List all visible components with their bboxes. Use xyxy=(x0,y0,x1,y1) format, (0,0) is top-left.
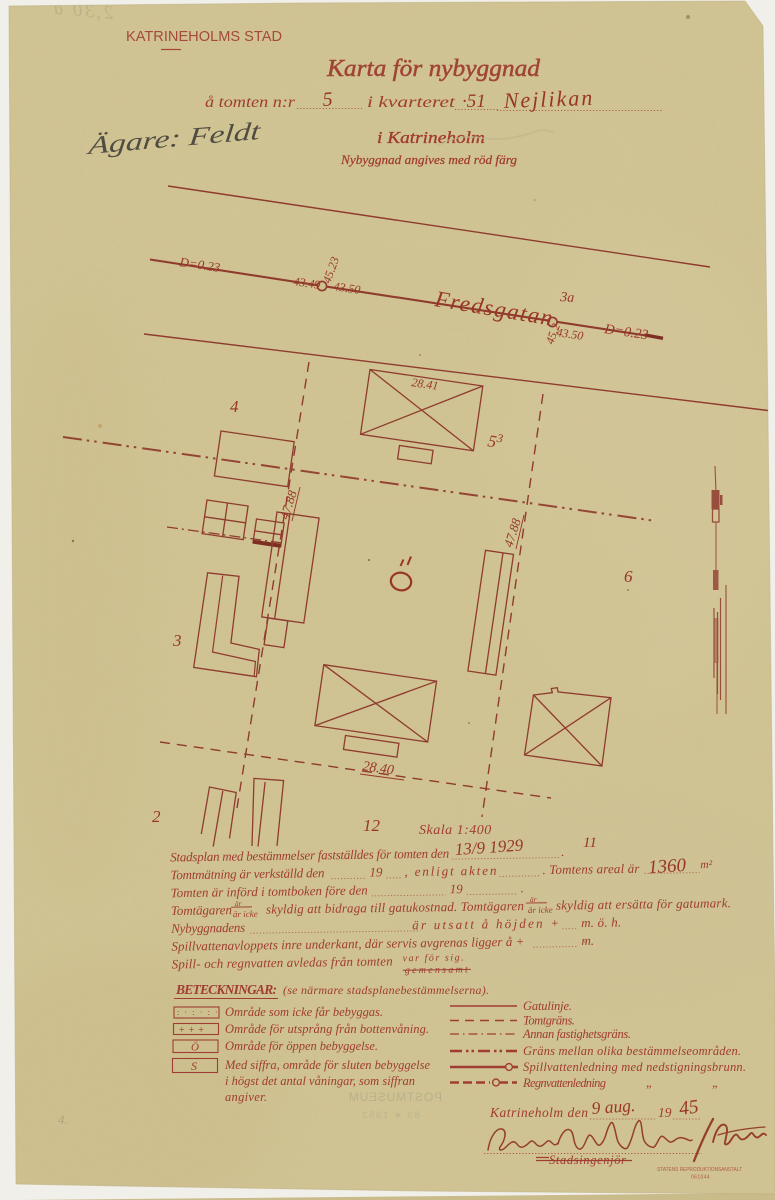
svg-text:„: „ xyxy=(712,1076,719,1090)
svg-text:11: 11 xyxy=(583,835,597,851)
svg-text:Tomten är införd i tomtboken f: Tomten är införd i tomtboken före den xyxy=(171,882,368,900)
svg-text:å tomten n:r: å tomten n:r xyxy=(205,94,296,111)
svg-text:i kvarteret: i kvarteret xyxy=(367,94,456,111)
svg-text:var för sig.: var för sig. xyxy=(403,952,464,964)
svg-text:·51: ·51 xyxy=(462,91,486,112)
svg-text:är: är xyxy=(530,895,537,904)
svg-text:83 ∗ 1952: 83 ∗ 1952 xyxy=(361,1110,420,1121)
svg-text:BETECKNINGAR:: BETECKNINGAR: xyxy=(175,982,277,997)
svg-text:3a: 3a xyxy=(559,290,575,306)
svg-text:Område för öppen bebyggelse.: Område för öppen bebyggelse. xyxy=(225,1039,378,1053)
svg-text:Annan fastighetsgräns.: Annan fastighetsgräns. xyxy=(522,1027,631,1041)
svg-text:061044: 061044 xyxy=(691,1175,710,1181)
svg-text:.: . xyxy=(521,880,524,895)
svg-text:. Tomtens areal är: . Tomtens areal är xyxy=(542,861,640,877)
svg-text:skyldig att ersätta för gatuma: skyldig att ersätta för gatumark. xyxy=(556,895,731,912)
svg-text:Ö: Ö xyxy=(191,1042,199,1054)
svg-text:är utsatt å höjden +: är utsatt å höjden + xyxy=(412,915,559,932)
svg-text:, enligt akten: , enligt akten xyxy=(404,863,496,879)
svg-text:2: 2 xyxy=(152,807,161,826)
svg-text:Tomtägaren: Tomtägaren xyxy=(171,902,232,918)
svg-text:STATENS REPRODUKTIONSANSTALT: STATENS REPRODUKTIONSANSTALT xyxy=(657,1167,742,1173)
svg-text:Nybyggnad angives med röd färg: Nybyggnad angives med röd färg xyxy=(340,153,517,167)
svg-text:m.: m. xyxy=(581,933,594,948)
svg-text:Gatulinje.: Gatulinje. xyxy=(523,999,572,1013)
svg-text:4.: 4. xyxy=(58,1112,68,1127)
svg-text:(se närmare stadsplanebestämme: (se närmare stadsplanebestämmelserna). xyxy=(283,983,489,997)
svg-text:.: . xyxy=(561,844,564,859)
svg-text:5: 5 xyxy=(322,88,334,111)
svg-text:Nejlikan: Nejlikan xyxy=(502,85,594,113)
svg-text:m. ö. h.: m. ö. h. xyxy=(581,915,621,931)
svg-text:Med siffra, område för sluten: Med siffra, område för sluten bebyggelse xyxy=(224,1058,430,1072)
svg-text:19: 19 xyxy=(450,881,464,896)
svg-text:Skala 1:400: Skala 1:400 xyxy=(419,823,492,838)
svg-text:Område som icke får bebyggas.: Område som icke får bebyggas. xyxy=(225,1005,383,1019)
svg-text:är: är xyxy=(235,899,242,908)
svg-text:Spillvattenledning med nedstig: Spillvattenledning med nedstigningsbrunn… xyxy=(523,1060,746,1074)
svg-text:Katrineholm den: Katrineholm den xyxy=(489,1105,588,1120)
svg-text:„: „ xyxy=(646,1076,653,1090)
svg-text:i högst det antal våningar, so: i högst det antal våningar, som siffran xyxy=(225,1074,415,1088)
svg-text:12: 12 xyxy=(363,816,381,835)
svg-text:m²: m² xyxy=(700,859,712,871)
svg-text:Regnvattenledning: Regnvattenledning xyxy=(522,1076,606,1090)
svg-text:Nybyggnadens: Nybyggnadens xyxy=(170,920,245,936)
svg-text:9 aug.: 9 aug. xyxy=(591,1095,636,1118)
svg-text:6: 6 xyxy=(624,567,633,586)
svg-text:+++: +++ xyxy=(179,1025,208,1036)
svg-text:är icke: är icke xyxy=(233,909,258,919)
svg-text:Tomtmätning är verkställd den: Tomtmätning är verkställd den xyxy=(170,865,324,882)
svg-text:45: 45 xyxy=(678,1096,700,1120)
svg-text:S: S xyxy=(191,1059,197,1073)
svg-text:19: 19 xyxy=(658,1105,672,1120)
svg-text:Område för utsprång från botte: Område för utsprång från bottenvåning. xyxy=(225,1022,429,1036)
svg-text:Spill- och regnvatten avledas: Spill- och regnvatten avledas från tomte… xyxy=(172,953,393,971)
svg-text:19: 19 xyxy=(369,864,383,879)
svg-text:Tomtgräns.: Tomtgräns. xyxy=(523,1014,575,1028)
svg-text:3: 3 xyxy=(172,631,182,650)
svg-text:POSTMUSEUM: POSTMUSEUM xyxy=(348,1090,442,1104)
svg-text:1360: 1360 xyxy=(647,855,687,879)
svg-text:4: 4 xyxy=(230,397,239,416)
svg-text:Karta för nybyggnad: Karta för nybyggnad xyxy=(326,56,541,82)
svg-text:angiver.: angiver. xyxy=(225,1090,267,1104)
svg-text:: · : · : ·: : · : · : · xyxy=(177,1008,219,1017)
svg-text:KATRINEHOLMS STAD: KATRINEHOLMS STAD xyxy=(126,29,282,45)
svg-text:Gräns mellan olika bestämmelse: Gräns mellan olika bestämmelseområden. xyxy=(523,1044,741,1058)
svg-text:är icke: är icke xyxy=(528,905,553,915)
